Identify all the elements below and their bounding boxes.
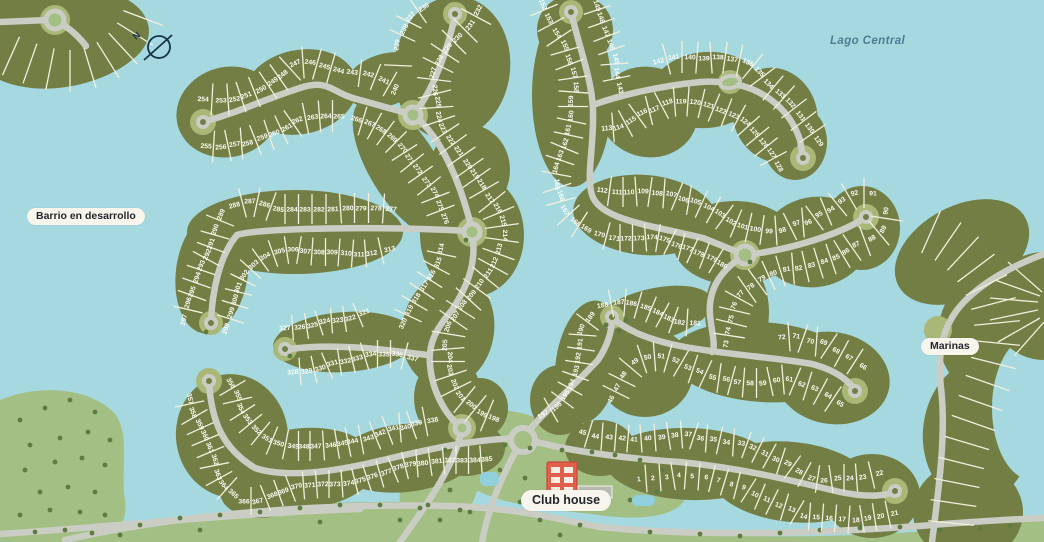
lot-number[interactable]: 40 [644,435,652,443]
lot-number[interactable]: 348 [298,443,310,450]
lot-number[interactable]: 174 [646,234,658,241]
lot-number[interactable]: 309 [326,249,338,256]
lot-number[interactable]: 346 [325,442,337,450]
lot-number[interactable]: 281 [327,206,339,213]
lot-number[interactable]: 284 [286,206,298,213]
lot-number[interactable]: 90 [882,207,890,216]
masterplan-map: 2542532522512502492482472462452442552562… [0,0,1044,542]
lot-number[interactable]: 205 [442,339,450,351]
lot-number[interactable]: 25 [834,475,842,483]
lot-number[interactable]: 347 [310,443,322,450]
lot-number[interactable]: 20 [876,513,885,521]
lot-number[interactable]: 58 [746,380,754,387]
lot-number[interactable]: 38 [671,432,680,440]
lot-number[interactable]: 138 [712,54,724,61]
lot-number[interactable]: 91 [869,190,877,197]
lot-number[interactable]: 226 [431,84,438,96]
lot-number[interactable]: 112 [596,187,608,195]
lake-label: Lago Central [830,35,905,47]
lot-number[interactable]: 34 [722,439,731,447]
lot-number[interactable]: 327 [279,325,291,333]
lot-number[interactable]: 173 [633,235,645,242]
lot-number[interactable]: 19 [863,515,872,523]
lot-number[interactable]: 159 [568,95,575,107]
lot-number[interactable]: 18 [852,517,860,524]
lot-number[interactable]: 372 [317,481,329,488]
lot-number[interactable]: 191 [576,338,584,350]
lot-number[interactable]: 82 [794,265,803,273]
lot-number[interactable]: 306 [287,246,299,253]
lot-number[interactable]: 384 [469,457,481,464]
lot-number[interactable]: 111 [612,189,623,197]
lot-number[interactable]: 99 [765,228,773,235]
lot-number[interactable]: 4 [677,472,681,479]
lot-number[interactable]: 166 [555,189,565,202]
lot-number[interactable]: 165 [553,178,560,190]
lot-number[interactable]: 287 [244,198,256,205]
lot-number[interactable]: 255 [200,143,212,151]
lot-number[interactable]: 24 [846,475,854,482]
lot-number[interactable]: 246 [304,59,316,67]
pool-icon [480,472,499,486]
lot-number[interactable]: 382 [444,457,456,464]
lot-number[interactable]: 37 [684,431,693,439]
lot-number[interactable]: 81 [782,266,791,274]
map-canvas: 2542532522512502492482472462452442552562… [0,0,1044,542]
lot-number[interactable]: 119 [676,98,687,105]
lot-number[interactable]: 187 [613,299,625,307]
lot-number[interactable]: 311 [354,251,365,258]
lot-number[interactable]: 72 [778,334,786,342]
lot-number[interactable]: 381 [431,458,443,466]
lot-number[interactable]: 328 [287,369,299,377]
lot-number[interactable]: 44 [591,433,600,441]
lot-number[interactable]: 39 [658,434,667,442]
lot-number[interactable]: 383 [456,457,468,464]
lot-number[interactable]: 371 [304,482,316,490]
pond-icon [632,495,655,506]
marinas-label: Marinas [921,338,979,355]
lot-number[interactable]: 50 [643,354,652,362]
lot-number[interactable]: 313 [383,245,396,254]
lot-number[interactable]: 59 [759,380,768,388]
lot-number[interactable]: 109 [637,188,649,195]
lot-number[interactable]: 33 [737,440,746,448]
lot-number[interactable]: 5 [690,473,695,480]
lot-number[interactable]: 16 [825,515,833,523]
lot-number[interactable]: 61 [785,376,794,384]
lot-number[interactable]: 41 [630,436,638,443]
lot-number[interactable]: 277 [385,206,397,214]
lot-number[interactable]: 51 [657,353,666,361]
lot-number[interactable]: 113 [601,125,613,133]
lot-number[interactable]: 380 [417,460,429,468]
lot-number[interactable]: 307 [299,248,311,256]
clubhouse-label: Club house [521,490,611,511]
lot-number[interactable]: 256 [215,144,227,152]
lot-number[interactable]: 283 [299,206,311,213]
lot-number[interactable]: 279 [355,205,367,212]
lot-number[interactable]: 139 [698,55,710,62]
lot-number[interactable]: 204 [446,351,453,363]
lot-number[interactable]: 326 [294,324,306,332]
lot-number[interactable]: 26 [820,477,828,484]
lot-number[interactable]: 140 [684,54,696,61]
lot-number[interactable]: 243 [346,69,358,77]
lot-number[interactable]: 43 [605,434,613,442]
lot-number[interactable]: 335 [378,351,390,358]
lot-number[interactable]: 254 [197,96,209,104]
lot-number[interactable]: 264 [320,113,332,120]
lot-number[interactable]: 385 [481,456,493,464]
lot-number[interactable]: 71 [792,333,801,341]
lot-number[interactable]: 110 [623,189,634,196]
lot-number[interactable]: 297 [180,313,189,326]
lot-number[interactable]: 253 [215,97,227,104]
lot-number[interactable]: 310 [340,250,352,258]
lot-number[interactable]: 73 [722,340,730,349]
lot-number[interactable]: 1 [637,476,641,483]
lot-number[interactable]: 172 [620,235,632,242]
lot-number[interactable]: 141 [668,54,680,62]
lot-number[interactable]: 373 [329,481,341,488]
lot-number[interactable]: 15 [812,514,820,522]
lot-number[interactable]: 57 [733,379,742,387]
lot-number[interactable]: 278 [370,205,382,212]
lot-number[interactable]: 36 [696,435,705,443]
lot-number[interactable]: 42 [618,435,626,443]
lot-number[interactable]: 23 [858,474,867,482]
lot-number[interactable]: 60 [773,377,782,385]
lot-number[interactable]: 366 [238,498,250,505]
lot-number[interactable]: 17 [838,516,846,524]
lot-number[interactable]: 142 [652,57,665,67]
lot-number[interactable]: 144 [612,67,621,79]
lot-number[interactable]: 35 [709,436,718,444]
lot-number[interactable]: 74 [724,326,732,335]
lot-number[interactable]: 56 [722,376,731,384]
lot-number[interactable]: 108 [651,190,663,198]
lot-number[interactable]: 280 [342,205,354,212]
lot-number[interactable]: 282 [313,206,325,213]
lot-number[interactable]: 323 [332,317,344,325]
lot-number[interactable]: 214 [501,230,508,242]
lot-number[interactable]: 329 [301,368,313,377]
lot-number[interactable]: 2 [651,475,655,482]
lot-number[interactable]: 160 [567,110,575,122]
developing-area-label: Barrio en desarrollo [27,208,145,225]
lot-number[interactable]: 181 [689,320,701,328]
lot-number[interactable]: 158 [572,81,579,93]
lot-number[interactable]: 308 [313,249,325,256]
lot-number[interactable]: 265 [333,113,345,120]
